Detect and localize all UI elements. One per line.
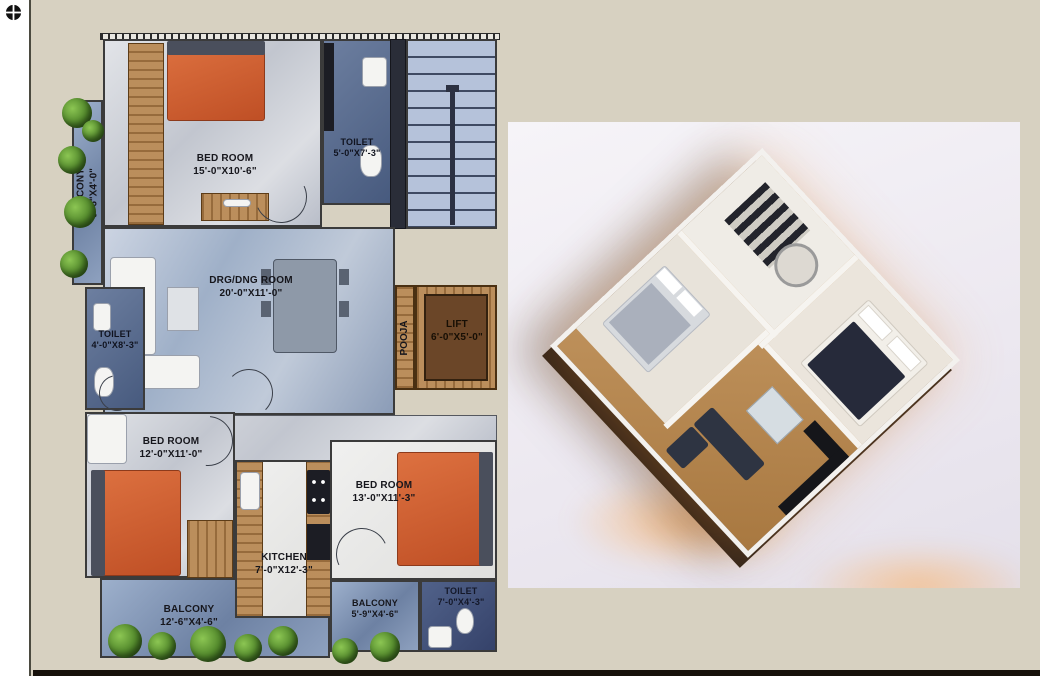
screenshot-root: BED ROOM15'-0"X10'-6" TOILET5'-0"X7'-3" … (0, 0, 1040, 676)
room-bedroom-mid: BED ROOM12'-0"X11'-0" (85, 412, 235, 578)
bed-pillow (167, 41, 265, 55)
room-label-bedroom-top: BED ROOM15'-0"X10'-6" (160, 153, 290, 178)
plant (58, 146, 86, 174)
washbasin (456, 608, 474, 634)
bed-pillow (91, 470, 105, 576)
bed-pillow (479, 452, 493, 566)
sink (93, 303, 111, 331)
door-arc (329, 521, 396, 588)
wardrobe (128, 43, 164, 225)
room-kitchen: KITCHEN7'-0"X12'-3" (235, 460, 330, 618)
room-label-drg-dng: DRG/DNG ROOM20'-0"X11'-0" (161, 275, 341, 300)
plant (82, 120, 104, 142)
dresser (187, 520, 233, 578)
plant (148, 632, 176, 660)
room-label-toilet-left: TOILET4'-0"X8'-3" (85, 329, 145, 352)
plant (370, 632, 400, 662)
shaft-wall (390, 39, 406, 229)
room-label-pooja: POOJA (399, 320, 412, 355)
toilet-fixture (428, 626, 452, 648)
room-label-toilet-top: TOILET5'-0"X7'-3" (324, 137, 390, 160)
plant (332, 638, 358, 664)
room-bedroom-top: BED ROOM15'-0"X10'-6" (103, 39, 322, 227)
room-label-kitchen: KITCHEN7'-0"X12'-3" (243, 552, 325, 577)
room-label-bedroom-bottom: BED ROOM13'-0"X11'-3" (328, 480, 440, 505)
room-label-toilet-bottom: TOILET7'-0"X4'-3" (426, 586, 496, 609)
warm-light-glow (798, 542, 1020, 588)
door-arc (225, 369, 273, 417)
room-toilet-top: TOILET5'-0"X7'-3" (322, 39, 392, 205)
gas-stove (307, 470, 330, 514)
room-label-lift: LIFT6'-0"X5'-0" (421, 319, 493, 344)
left-tool-strip (0, 0, 31, 676)
dining-chair (261, 301, 271, 317)
room-pooja: POOJA (395, 285, 415, 390)
plant (64, 196, 96, 228)
room-lift: LIFT6'-0"X5'-0" (415, 285, 497, 390)
dining-table (273, 259, 337, 353)
room-bedroom-bottom: BED ROOM13'-0"X11'-3" (330, 440, 497, 580)
dresser-tray (223, 199, 251, 207)
room-toilet-left: TOILET4'-0"X8'-3" (85, 287, 145, 410)
room-drg-dng: DRG/DNG ROOM20'-0"X11'-0" (103, 227, 395, 415)
stair-rail-cap (446, 85, 459, 92)
room-label-bedroom-mid: BED ROOM12'-0"X11'-0" (109, 436, 233, 461)
sink (362, 57, 387, 87)
plant (234, 634, 262, 662)
plant (190, 626, 226, 662)
door-panel (324, 43, 334, 131)
room-label-balcony-bottom-left: BALCONY12'-6"X4'-6" (114, 604, 264, 629)
room-label-balcony-bottom-mid: BALCONY5'-9"X4'-6" (332, 598, 418, 621)
floor-plan-2d: BED ROOM15'-0"X10'-6" TOILET5'-0"X7'-3" … (64, 28, 504, 666)
kitchen-sink (240, 472, 260, 510)
staircase (406, 39, 497, 229)
bottom-divider-bar (33, 670, 1040, 676)
plant (268, 626, 298, 656)
dining-chair (339, 301, 349, 317)
plant (60, 250, 88, 278)
plant (108, 624, 142, 658)
iso-kitchen-counter (778, 448, 852, 518)
floor-plan-3d-render (508, 122, 1020, 588)
iso-dining-table (746, 386, 804, 444)
room-toilet-bottom: TOILET7'-0"X4'-3" (420, 580, 497, 652)
stair-rail (450, 89, 455, 225)
crosshair-target-icon[interactable] (5, 4, 22, 21)
